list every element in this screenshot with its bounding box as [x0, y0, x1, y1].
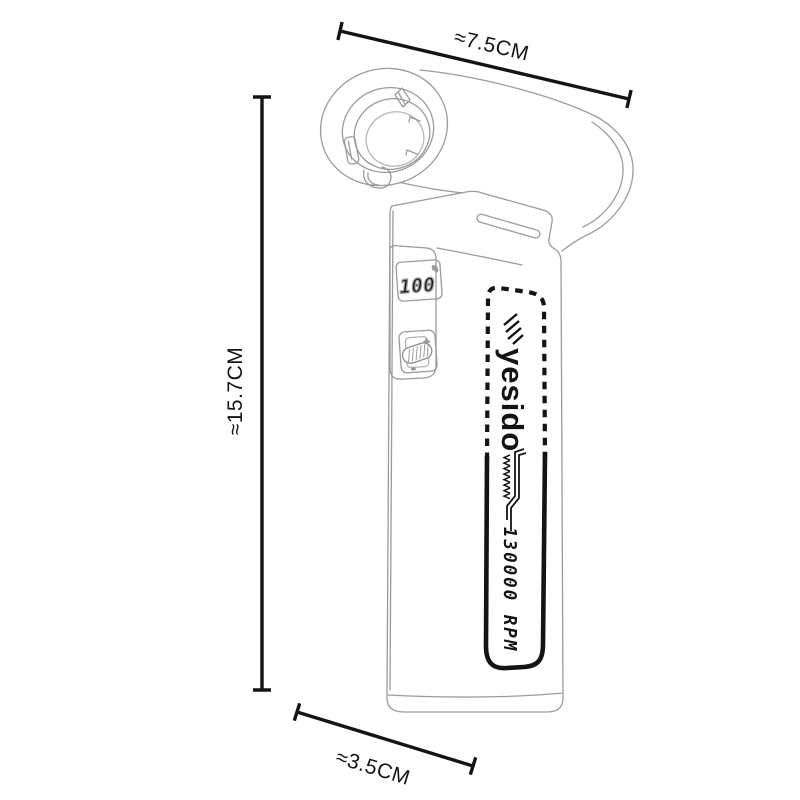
rpm-label-text: 130000 RPM — [499, 527, 519, 652]
fan-handle — [387, 191, 563, 712]
brand-logo-text: yesido — [495, 348, 530, 452]
handle-outline — [387, 191, 563, 712]
depth-dimension-label: ≈3.5CM — [333, 746, 413, 790]
height-dimension-label: ≈15.7CM — [224, 347, 247, 436]
display-value: 100 — [399, 274, 436, 298]
fan-intake-ring — [305, 52, 463, 202]
height-dimension: ≈15.7CM — [224, 97, 271, 690]
brand-logo: yesido — [495, 348, 530, 452]
rpm-label: 130000 RPM — [499, 527, 519, 652]
barrel-right-cap — [562, 117, 633, 251]
product-dimension-diagram: 100 % + - yesido — [0, 0, 800, 800]
depth-dimension: ≈3.5CM — [294, 703, 475, 790]
barrel-bottom-edge — [398, 182, 463, 193]
fan-drawing: 100 % + - — [305, 52, 633, 712]
barrel-top-edge — [420, 70, 597, 117]
